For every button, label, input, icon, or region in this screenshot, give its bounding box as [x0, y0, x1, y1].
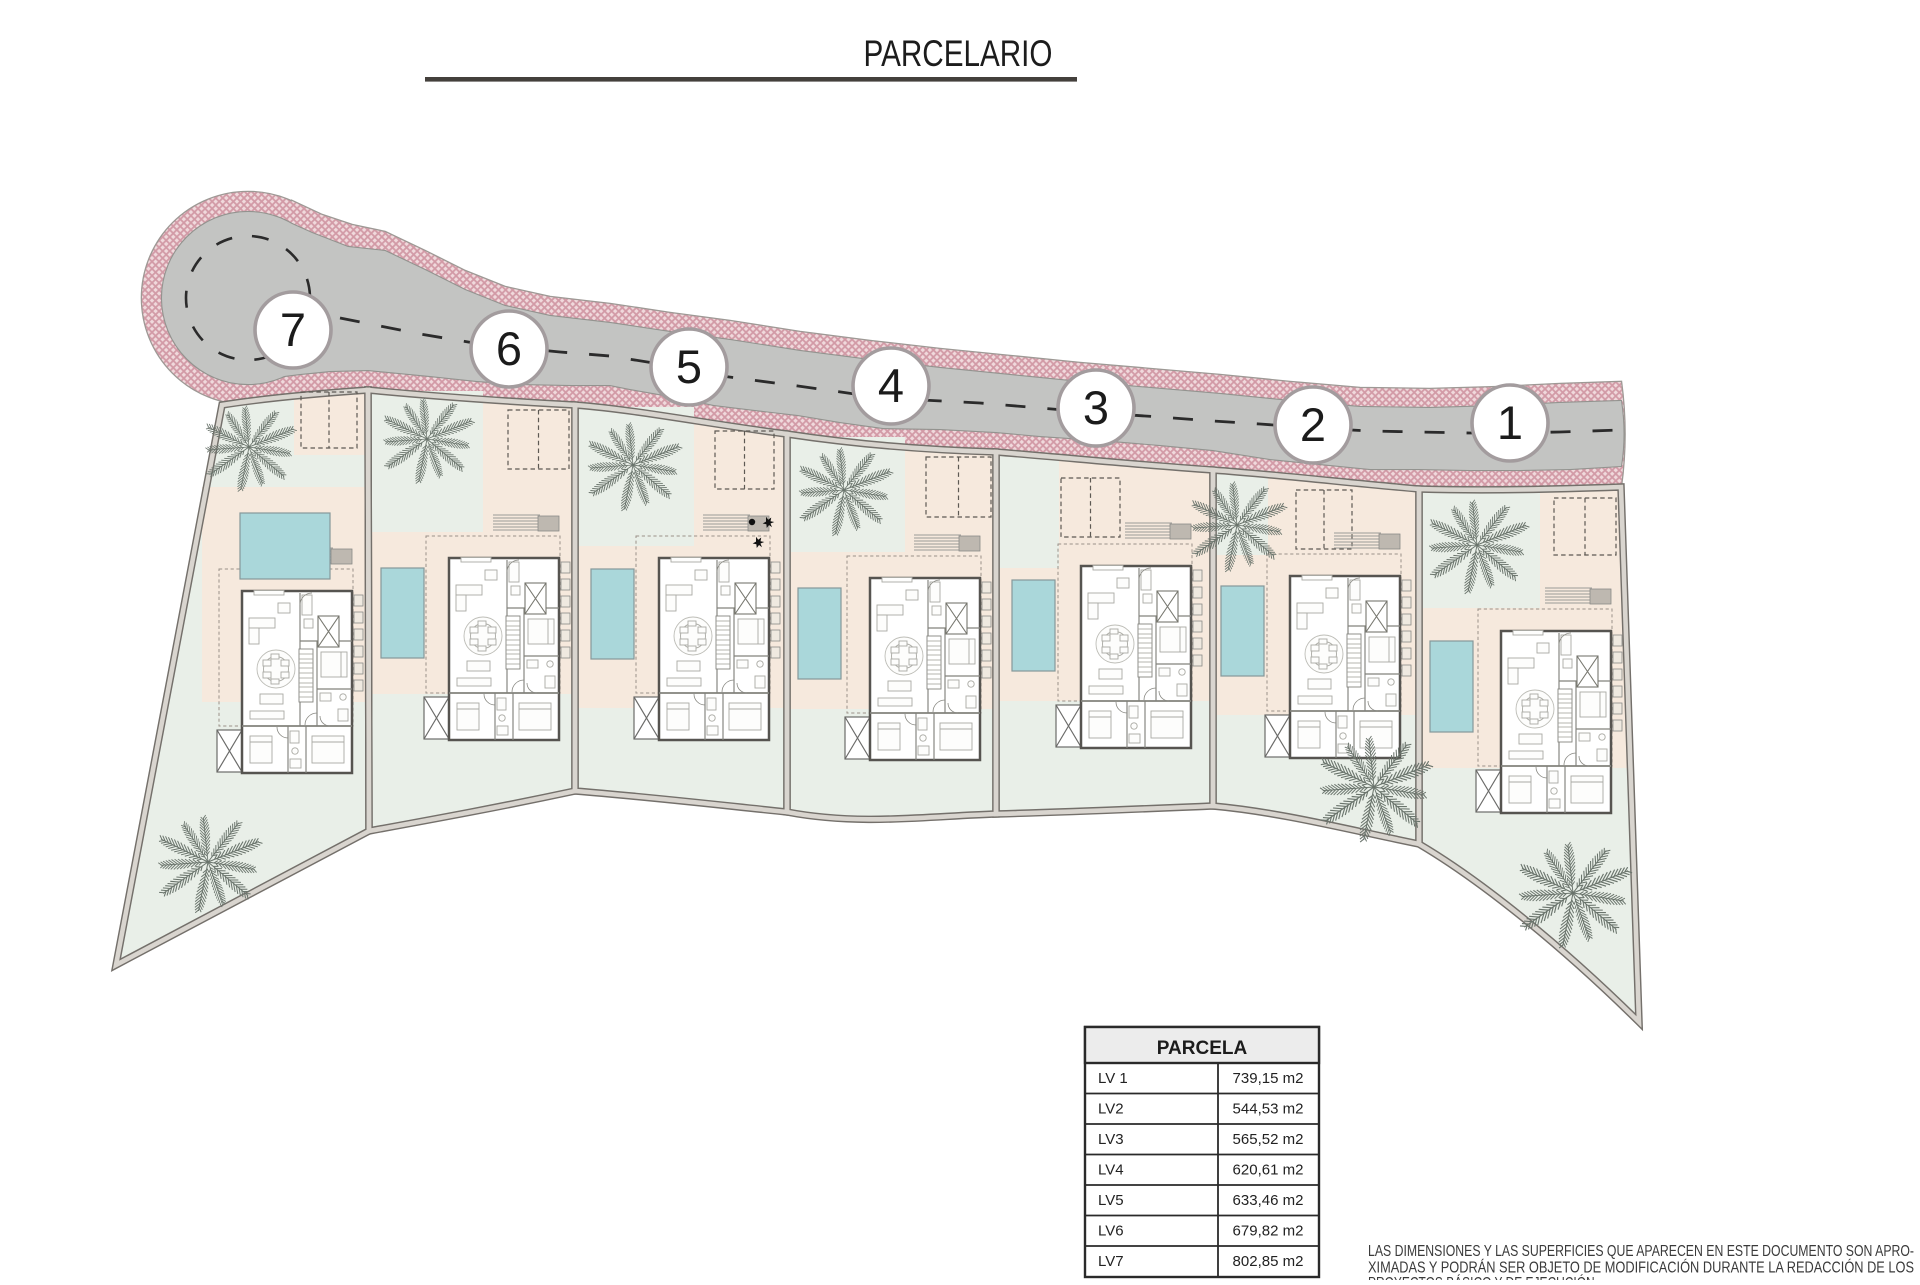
svg-text:5: 5 — [676, 340, 702, 393]
svg-text:LV2: LV2 — [1098, 1101, 1124, 1118]
svg-text:633,46 m2: 633,46 m2 — [1233, 1192, 1304, 1209]
svg-text:PARCELARIO: PARCELARIO — [864, 33, 1053, 74]
svg-text:739,15 m2: 739,15 m2 — [1233, 1070, 1304, 1087]
svg-text:3: 3 — [1083, 381, 1109, 434]
svg-text:LV 1: LV 1 — [1098, 1070, 1128, 1087]
svg-text:LV3: LV3 — [1098, 1131, 1124, 1148]
svg-text:620,61 m2: 620,61 m2 — [1233, 1162, 1304, 1179]
svg-text:679,82 m2: 679,82 m2 — [1233, 1223, 1304, 1240]
svg-text:PARCELA: PARCELA — [1157, 1038, 1248, 1059]
svg-text:6: 6 — [496, 322, 522, 375]
svg-text:PROYECTOS BÁSICO Y DE EJECUCIÓ: PROYECTOS BÁSICO Y DE EJECUCIÓN. — [1368, 1275, 1598, 1280]
svg-text:2: 2 — [1300, 398, 1326, 451]
svg-text:LAS DIMENSIONES Y LAS SUPERFIC: LAS DIMENSIONES Y LAS SUPERFICIES QUE AP… — [1368, 1243, 1914, 1260]
svg-text:LV6: LV6 — [1098, 1223, 1124, 1240]
svg-text:XIMADAS Y PODRÁN SER OBJETO DE: XIMADAS Y PODRÁN SER OBJETO DE MODIFICAC… — [1368, 1260, 1914, 1277]
svg-text:LV7: LV7 — [1098, 1253, 1124, 1270]
svg-text:LV4: LV4 — [1098, 1162, 1124, 1179]
svg-text:4: 4 — [878, 359, 904, 412]
svg-text:1: 1 — [1497, 396, 1523, 449]
svg-text:565,52 m2: 565,52 m2 — [1233, 1131, 1304, 1148]
svg-text:802,85 m2: 802,85 m2 — [1233, 1253, 1304, 1270]
svg-text:7: 7 — [280, 303, 306, 356]
svg-text:544,53 m2: 544,53 m2 — [1233, 1101, 1304, 1118]
svg-text:LV5: LV5 — [1098, 1192, 1124, 1209]
